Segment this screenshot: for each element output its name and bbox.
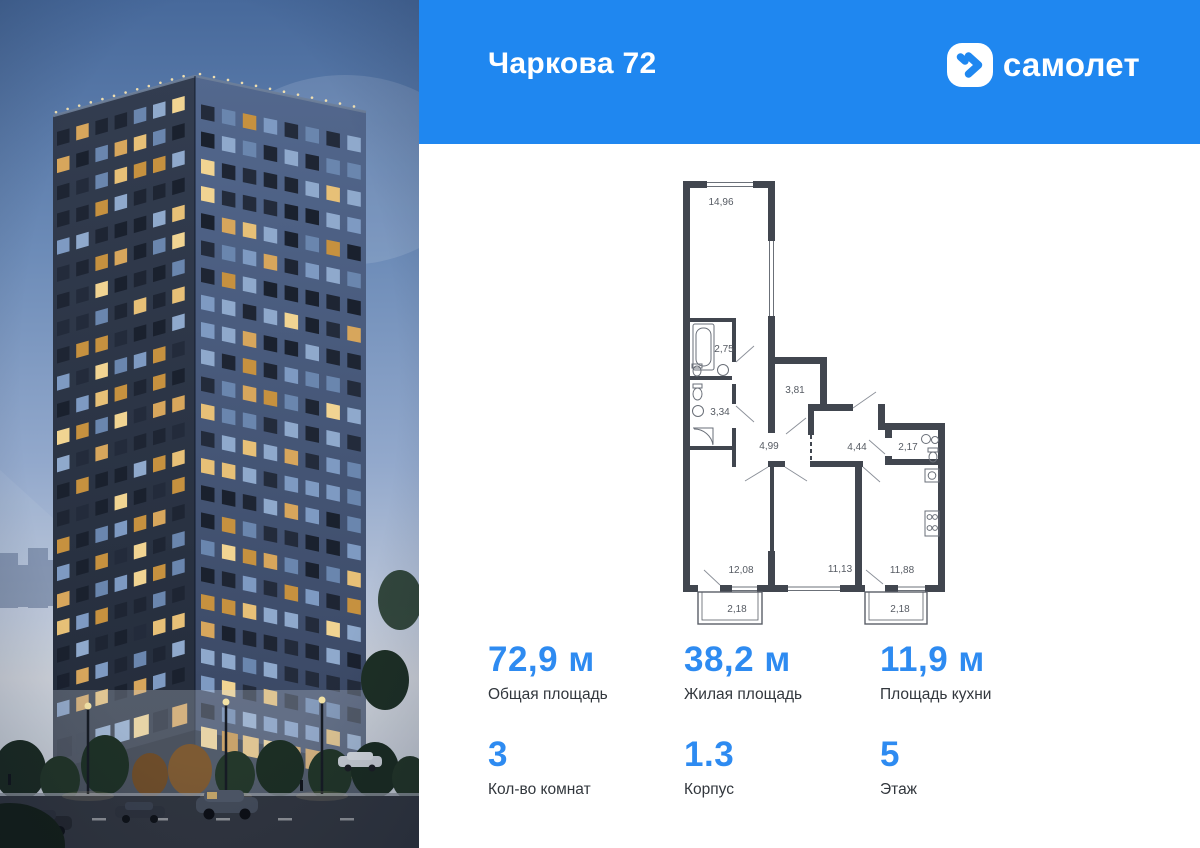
samolet-plane-icon bbox=[947, 43, 993, 87]
stat-total-area: 72,9 м Общая площадь bbox=[488, 642, 684, 704]
header-bar: Чаркова 72 самолет bbox=[419, 0, 1200, 144]
stat-building: 1.3 Корпус bbox=[684, 737, 880, 799]
stat-label: Этаж bbox=[880, 781, 991, 799]
room-area-label: 11,88 bbox=[890, 565, 915, 576]
stat-living-area: 38,2 м Жилая площадь bbox=[684, 642, 880, 704]
brand-logo: самолет bbox=[947, 43, 1140, 87]
stat-label: Жилая площадь bbox=[684, 686, 880, 704]
listing-card: Чаркова 72 самолет bbox=[0, 0, 1200, 848]
stat-value: 72,9 м bbox=[488, 642, 684, 677]
room-area-label: 4,44 bbox=[847, 442, 867, 453]
building-photo bbox=[0, 0, 419, 848]
stat-label: Кол-во комнат bbox=[488, 781, 684, 799]
room-area-label: 2,17 bbox=[898, 442, 918, 453]
room-area-label: 4,99 bbox=[759, 441, 779, 452]
stat-label: Площадь кухни bbox=[880, 686, 991, 704]
stat-label: Общая площадь bbox=[488, 686, 684, 704]
stat-value: 3 bbox=[488, 737, 684, 772]
stat-rooms-count: 3 Кол-во комнат bbox=[488, 737, 684, 799]
stat-value: 11,9 м bbox=[880, 642, 991, 677]
room-area-label: 2,75 bbox=[714, 344, 734, 355]
stat-value: 1.3 bbox=[684, 737, 880, 772]
room-area-label: 12,08 bbox=[728, 565, 753, 576]
floor-plan: 14,96 2,75 3,34 3,81 4,99 4,44 2,17 12,0… bbox=[680, 178, 950, 630]
stat-value: 38,2 м bbox=[684, 642, 880, 677]
stats-grid: 72,9 м Общая площадь 38,2 м Жилая площад… bbox=[488, 642, 991, 799]
stat-kitchen-area: 11,9 м Площадь кухни bbox=[880, 642, 991, 704]
stat-floor: 5 Этаж bbox=[880, 737, 991, 799]
building-illustration bbox=[0, 0, 419, 848]
stat-label: Корпус bbox=[684, 781, 880, 799]
room-area-label: 11,13 bbox=[828, 564, 853, 575]
room-area-label: 3,81 bbox=[785, 385, 805, 396]
brand-name: самолет bbox=[1003, 46, 1140, 84]
room-area-label: 14,96 bbox=[708, 197, 733, 208]
info-panel: Чаркова 72 самолет bbox=[419, 0, 1200, 848]
room-area-label: 3,34 bbox=[710, 407, 730, 418]
room-area-label: 2,18 bbox=[890, 604, 910, 615]
room-area-label: 2,18 bbox=[727, 604, 747, 615]
project-title: Чаркова 72 bbox=[488, 47, 656, 81]
stat-value: 5 bbox=[880, 737, 991, 772]
